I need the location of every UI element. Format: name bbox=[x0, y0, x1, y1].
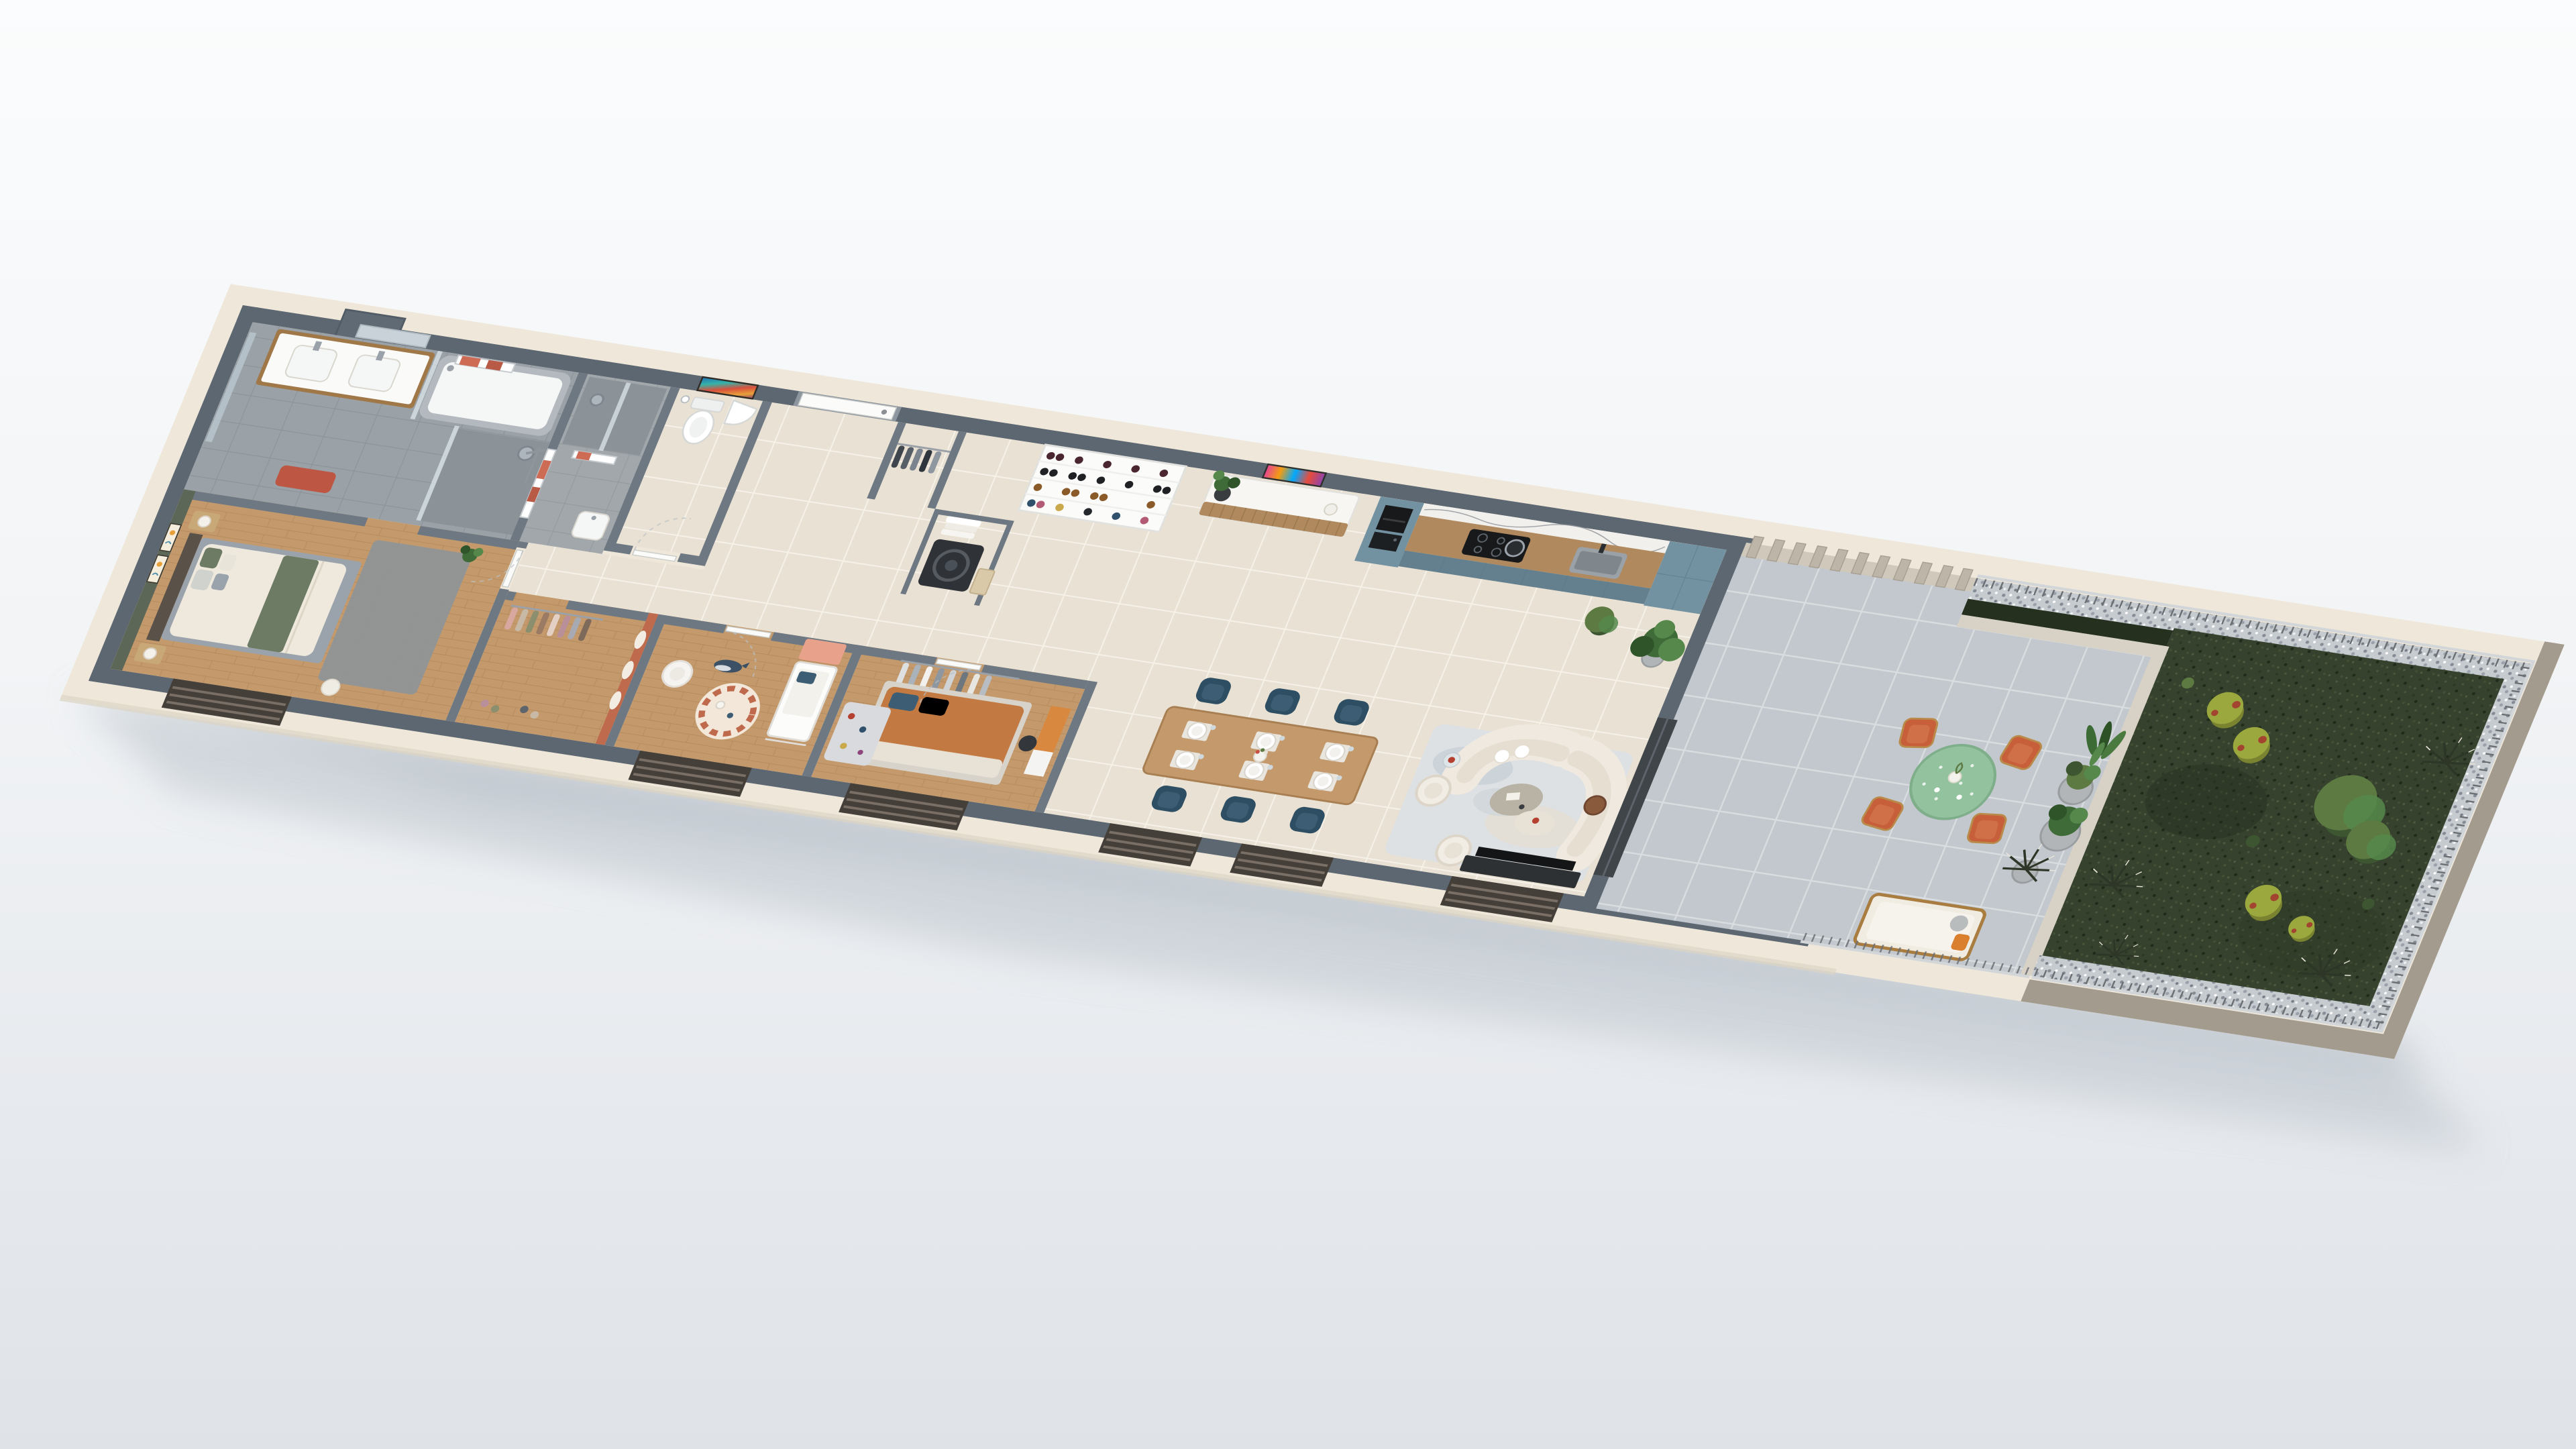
floorplan-3d-render bbox=[0, 0, 2576, 1449]
book bbox=[1506, 792, 1520, 800]
